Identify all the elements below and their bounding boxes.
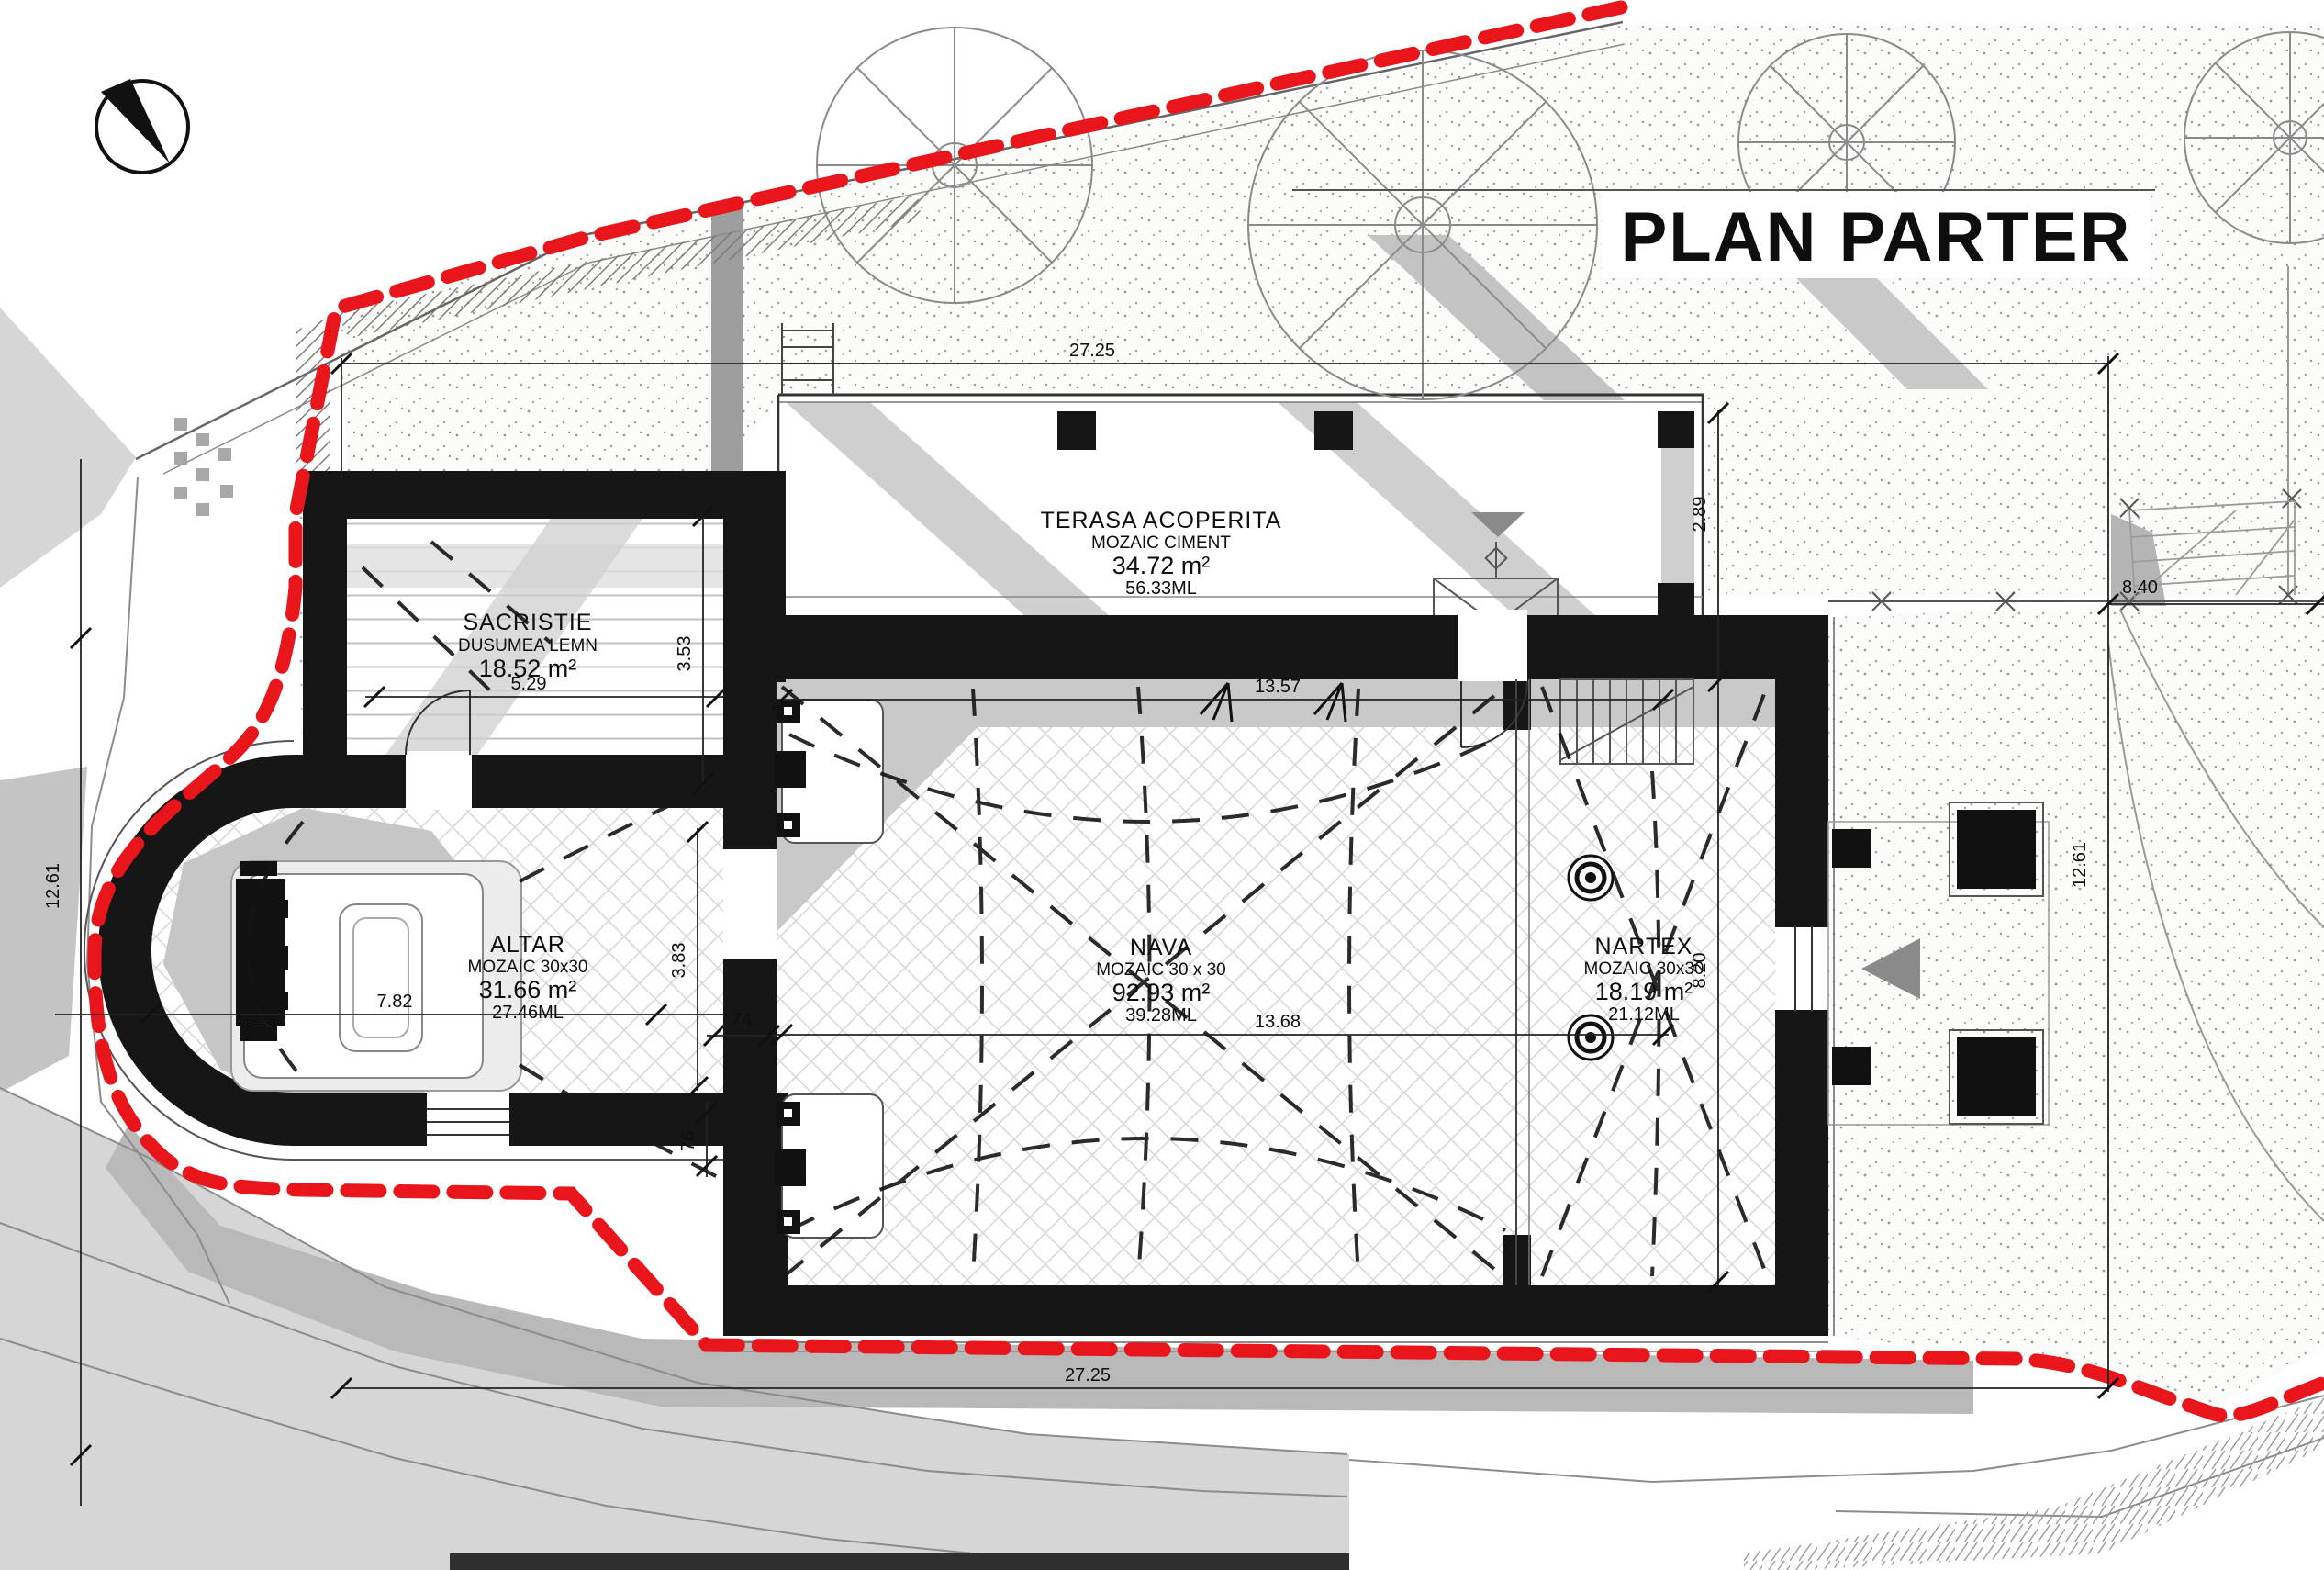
dim-bottom: 27.25 bbox=[1065, 1365, 1111, 1385]
dim-left: 12.61 bbox=[43, 863, 63, 909]
dim-76: 76 bbox=[678, 1131, 698, 1151]
north-arrow-icon bbox=[96, 79, 188, 173]
room-terasa-name: TERASA ACOPERITA bbox=[1041, 508, 1282, 533]
tree bbox=[817, 28, 1092, 303]
dim-apse-depth: 7.82 bbox=[377, 992, 413, 1012]
room-nava-finish: MOZAIC 30 x 30 bbox=[1096, 960, 1226, 980]
dim-74: 74 bbox=[732, 1010, 752, 1030]
floor-plan-canvas: 27.25 27.25 12.61 12.61 8.40 2.89 5.29 3… bbox=[0, 0, 2324, 1570]
room-nava-area: 92.93 m² bbox=[1112, 979, 1211, 1006]
room-sacristie-name: SACRISTIE bbox=[464, 610, 593, 635]
room-terasa-finish: MOZAIC CIMENT bbox=[1091, 533, 1231, 553]
room-terasa-area: 34.72 m² bbox=[1112, 552, 1211, 579]
room-altar-area: 31.66 m² bbox=[479, 976, 577, 1004]
room-terasa-perimeter: 56.33ML bbox=[1125, 578, 1197, 599]
room-nartex-area: 18.19 m² bbox=[1595, 978, 1693, 1005]
dim-terrace-depth: 2.89 bbox=[1690, 497, 1710, 533]
dim-sacristie-depth: 3.53 bbox=[675, 636, 695, 672]
room-altar-perimeter: 27.46ML bbox=[492, 1003, 564, 1023]
dim-upper-right: 8.40 bbox=[2122, 578, 2158, 598]
tree bbox=[1248, 50, 1597, 399]
dim-nava-upper: 13.57 bbox=[1255, 677, 1301, 697]
room-nava-name: NAVA bbox=[1130, 935, 1192, 960]
room-altar-finish: MOZAIC 30x30 bbox=[468, 958, 588, 977]
dim-altar-depth: 3.83 bbox=[669, 943, 689, 979]
drawing-sheet: 27.25 27.25 12.61 12.61 8.40 2.89 5.29 3… bbox=[0, 0, 2324, 1570]
room-nartex-finish: MOZAIC 30x30 bbox=[1584, 959, 1704, 979]
dim-right: 12.61 bbox=[2070, 842, 2090, 888]
dim-nava-lower: 13.68 bbox=[1255, 1012, 1301, 1032]
room-nartex-name: NARTEX bbox=[1595, 934, 1693, 959]
room-nava-perimeter: 39.28ML bbox=[1125, 1005, 1197, 1026]
room-nartex-perimeter: 21.12ML bbox=[1608, 1004, 1680, 1025]
page-title: PLAN PARTER bbox=[1621, 198, 2132, 276]
room-altar-name: ALTAR bbox=[490, 932, 565, 958]
dim-top: 27.25 bbox=[1069, 341, 1115, 361]
